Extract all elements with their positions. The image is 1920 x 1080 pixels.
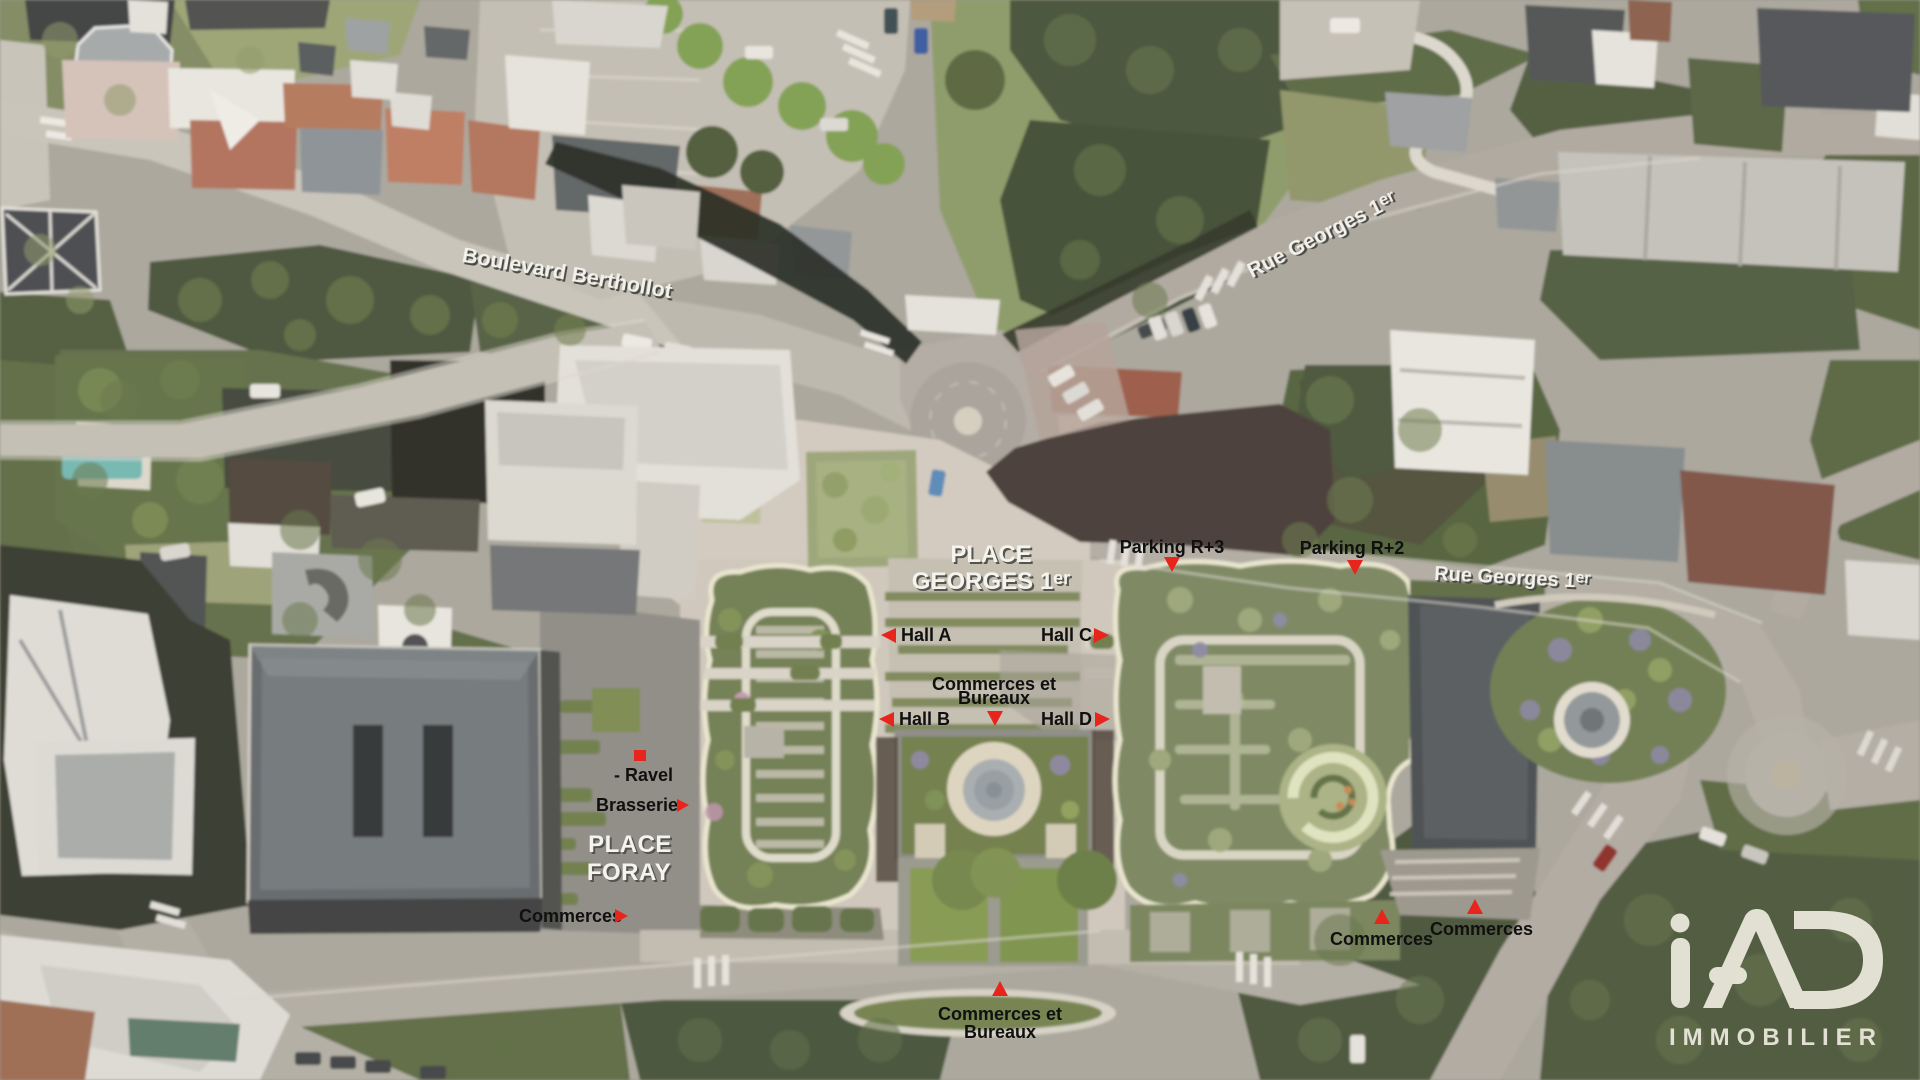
svg-text:Parking R+2: Parking R+2: [1300, 538, 1405, 558]
svg-text:Commerces: Commerces: [1430, 919, 1533, 939]
svg-text:FORAY: FORAY: [587, 859, 671, 886]
svg-text:Commerces: Commerces: [1330, 929, 1433, 949]
svg-text:Brasserie: Brasserie: [596, 795, 678, 815]
svg-text:PLACE: PLACE: [950, 541, 1031, 568]
svg-text:Commerces et: Commerces et: [938, 1004, 1062, 1024]
svg-text:PLACE: PLACE: [588, 831, 672, 858]
svg-text:Bureaux: Bureaux: [958, 688, 1030, 708]
svg-text:- Ravel: - Ravel: [614, 765, 673, 785]
svg-text:Commerces: Commerces: [519, 906, 622, 926]
svg-text:Hall B: Hall B: [899, 709, 950, 729]
svg-text:IMMOBILIER: IMMOBILIER: [1669, 1024, 1883, 1051]
svg-text:Parking R+3: Parking R+3: [1120, 537, 1225, 557]
svg-text:Hall D: Hall D: [1041, 709, 1092, 729]
svg-text:Bureaux: Bureaux: [964, 1022, 1036, 1042]
svg-text:GEORGES 1er: GEORGES 1er: [912, 568, 1070, 595]
svg-text:Hall A: Hall A: [901, 625, 951, 645]
svg-text:Hall C: Hall C: [1041, 625, 1092, 645]
